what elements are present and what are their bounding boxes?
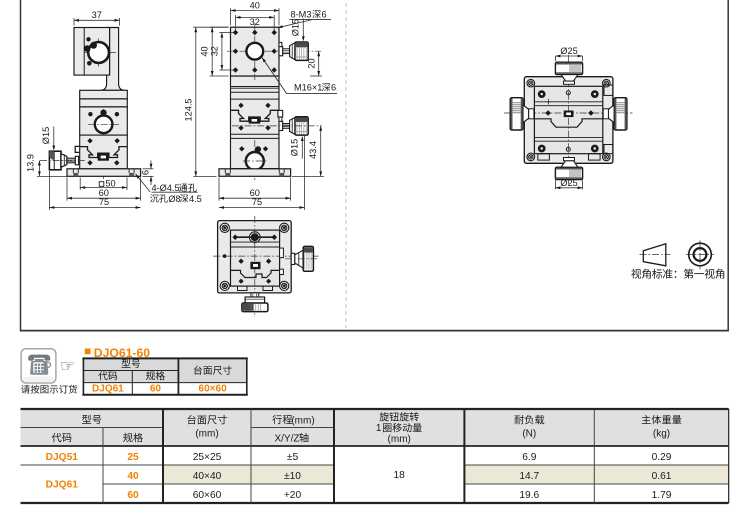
svg-text:(mm): (mm)	[388, 434, 411, 445]
svg-text:DJQ51: DJQ51	[46, 452, 79, 463]
svg-text:6: 6	[141, 170, 151, 175]
svg-text:32: 32	[250, 17, 260, 27]
svg-text:DJQ61: DJQ61	[46, 480, 79, 491]
svg-text:75: 75	[252, 197, 262, 207]
svg-text:60: 60	[150, 383, 162, 394]
svg-text:Ø15: Ø15	[291, 19, 301, 36]
svg-text:Ø8: Ø8	[168, 194, 180, 204]
svg-text:75: 75	[99, 197, 109, 207]
svg-text:Ø25: Ø25	[560, 178, 577, 188]
svg-text:4.5: 4.5	[189, 194, 202, 204]
svg-text:6.9: 6.9	[522, 452, 536, 463]
svg-text:(kg): (kg)	[653, 429, 670, 440]
svg-text:40: 40	[199, 46, 209, 56]
svg-text:43.4: 43.4	[308, 141, 318, 159]
svg-text:+20: +20	[284, 490, 302, 501]
svg-text:0.61: 0.61	[652, 471, 672, 482]
svg-text:14.7: 14.7	[519, 471, 539, 482]
svg-text:6: 6	[331, 83, 336, 93]
svg-text:37: 37	[92, 10, 102, 20]
svg-text:20: 20	[307, 58, 317, 68]
svg-text:8-M3: 8-M3	[291, 10, 312, 20]
svg-text:±5: ±5	[287, 452, 299, 463]
svg-text:18: 18	[394, 470, 406, 481]
svg-text:(mm): (mm)	[291, 415, 314, 426]
svg-text:13.9: 13.9	[26, 154, 36, 172]
svg-text:6: 6	[322, 10, 327, 20]
svg-text:4-Ø4.5: 4-Ø4.5	[152, 183, 180, 193]
svg-text:Ø25: Ø25	[560, 46, 577, 56]
svg-text:Ø15: Ø15	[290, 139, 300, 156]
svg-text:60×60: 60×60	[193, 490, 222, 501]
svg-text:X/Y/Z: X/Y/Z	[274, 433, 299, 444]
svg-text:±10: ±10	[284, 471, 301, 482]
svg-text:40: 40	[250, 0, 260, 10]
svg-text:124.5: 124.5	[183, 99, 193, 122]
svg-text:40×40: 40×40	[193, 471, 222, 482]
svg-text:1.79: 1.79	[652, 490, 672, 501]
svg-text:50: 50	[105, 178, 115, 188]
svg-text:DJQ61: DJQ61	[92, 383, 124, 394]
svg-text:0.29: 0.29	[652, 452, 672, 463]
svg-text:32: 32	[209, 46, 219, 56]
svg-text:(N): (N)	[522, 429, 536, 440]
svg-text:25×25: 25×25	[193, 452, 222, 463]
svg-text:19.6: 19.6	[519, 490, 539, 501]
svg-text:60×60: 60×60	[199, 383, 228, 394]
svg-text:M16×1: M16×1	[294, 83, 322, 93]
svg-text:25: 25	[127, 452, 139, 463]
svg-text:40: 40	[127, 471, 139, 482]
svg-text:1: 1	[376, 423, 382, 434]
svg-text:Ø15: Ø15	[41, 127, 51, 144]
svg-text:60: 60	[127, 490, 139, 501]
svg-text:(mm): (mm)	[195, 429, 218, 440]
